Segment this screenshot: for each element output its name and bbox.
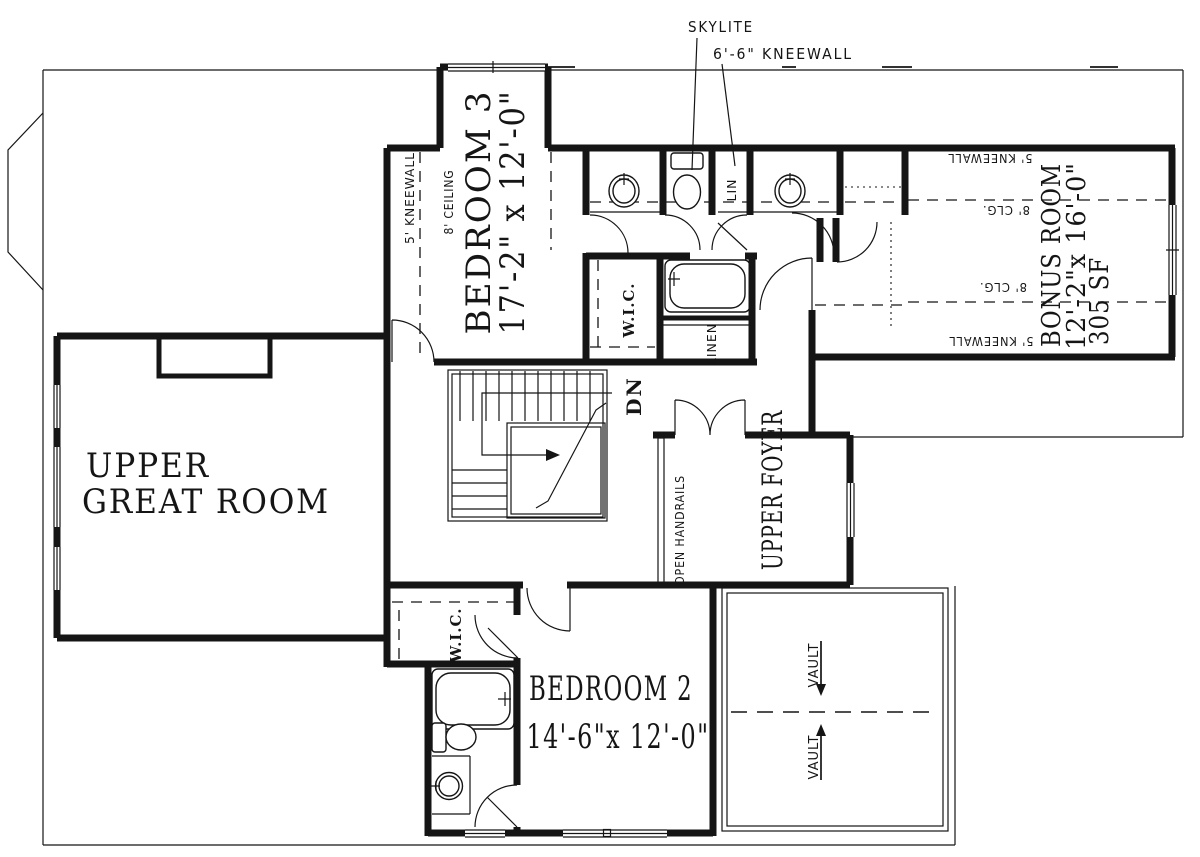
- great-room-window-2: [53, 447, 62, 527]
- bonus-clg-top-label: 8' CLG.: [982, 203, 1030, 218]
- bonus-kneewall-top-label: 5' KNEEWALL: [948, 151, 1033, 166]
- bonus-kneewall-bottom-label: 5' KNEEWALL: [949, 334, 1034, 349]
- bathtub-fixture-bed2-bath: [432, 669, 514, 729]
- bonus-passage-door: [760, 258, 812, 310]
- toilet-fixture-hall-bath: [671, 153, 703, 209]
- floor-plan-page: SKYLITE 6'-6" KNEEWALL BEDROOM 3 17'-2" …: [0, 0, 1200, 857]
- wic2-door: [475, 615, 518, 658]
- bedroom2-dims-label: 14'-6"x 12'-0": [527, 717, 710, 757]
- floor-plan-drawing: SKYLITE 6'-6" KNEEWALL BEDROOM 3 17'-2" …: [0, 0, 1200, 857]
- hall-door: [712, 215, 747, 250]
- bonus-clg-bottom-label: 8' CLG.: [979, 280, 1027, 295]
- foyer-double-door: [675, 400, 745, 435]
- kneewall-66-label: 6'-6" KNEEWALL: [713, 45, 853, 63]
- upper-foyer-label: UPPER FOYER: [756, 410, 789, 570]
- bathtub-fixture-hall-bath: [665, 260, 750, 312]
- bedroom3-dims-label: 17'-2" x 12'-0": [493, 90, 533, 335]
- wic-master-label: W.I.C.: [620, 283, 638, 339]
- vanity-counter-bed2-bath: [431, 756, 470, 814]
- vault-bottom-label: VAULT: [807, 735, 822, 780]
- bedroom2-entry-door: [527, 588, 570, 631]
- great-room-niche: [159, 339, 270, 376]
- bonus-area-label: 305 SF: [1085, 257, 1115, 345]
- left-vanity-door: [590, 215, 628, 253]
- open-handrail: [658, 438, 664, 583]
- skylite-label: SKYLITE: [688, 18, 754, 36]
- vault-top-label: VAULT: [807, 643, 822, 688]
- bedroom2-window-small: [465, 829, 505, 838]
- upper-great-room-label-line2: GREAT ROOM: [82, 482, 330, 522]
- bay-roof-outline: [8, 113, 43, 290]
- dn-label: DN: [622, 376, 646, 416]
- upper-great-room-label-line1: UPPER: [86, 446, 210, 486]
- right-vanity-door: [792, 213, 834, 255]
- stair-treads-lower: [452, 470, 507, 509]
- stair-walk-line: [482, 393, 612, 455]
- stair-treads-upper: [460, 371, 590, 421]
- toilet-room-door: [665, 215, 700, 250]
- left-sink-fixture: [609, 173, 639, 207]
- stairs: [448, 370, 612, 521]
- bedroom3-ceiling-label: 8' CEILING: [441, 170, 456, 235]
- toilet-fixture-bed2-bath: [432, 723, 476, 752]
- bonus-room-window: [1166, 205, 1179, 295]
- stair-walk-arrow: [546, 449, 560, 461]
- bedroom2-window-large: [563, 829, 667, 838]
- bedroom3-door: [392, 320, 434, 362]
- vault-room: [722, 588, 948, 831]
- bedroom3-kneewall-label: 5' KNEEWALL: [402, 152, 417, 244]
- great-room-window-3: [53, 547, 62, 590]
- great-room-window-1: [53, 385, 62, 428]
- foyer-window: [846, 483, 855, 537]
- lin-closet-label: LIN: [724, 178, 739, 201]
- closet-door: [837, 222, 877, 262]
- right-sink-fixture: [775, 173, 805, 207]
- bedroom2-label: BEDROOM 2: [529, 669, 693, 709]
- wic-bedroom2-label: W.I.C.: [447, 608, 465, 664]
- bed2-bath-door: [475, 785, 517, 827]
- open-handrails-label: OPEN HANDRAILS: [672, 475, 687, 585]
- linen-label: LINEN: [704, 323, 719, 365]
- bedroom3-window: [448, 61, 545, 73]
